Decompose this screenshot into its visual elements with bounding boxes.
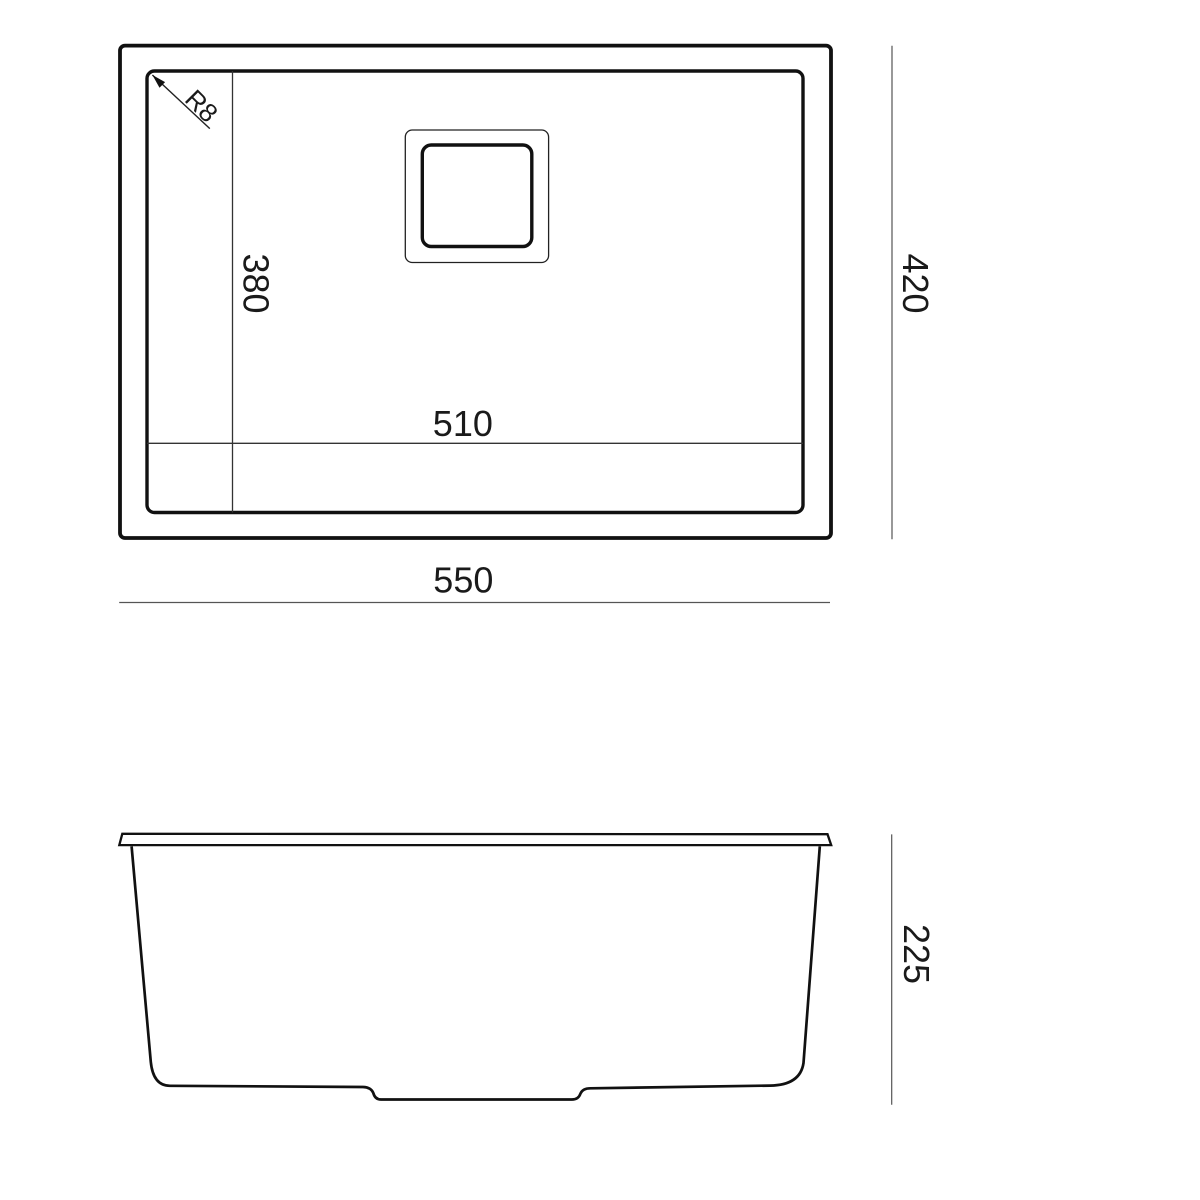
svg-text:420: 420 xyxy=(895,254,936,314)
svg-text:225: 225 xyxy=(896,924,937,984)
svg-text:380: 380 xyxy=(236,254,277,314)
svg-text:550: 550 xyxy=(433,560,493,601)
svg-text:510: 510 xyxy=(433,403,493,444)
